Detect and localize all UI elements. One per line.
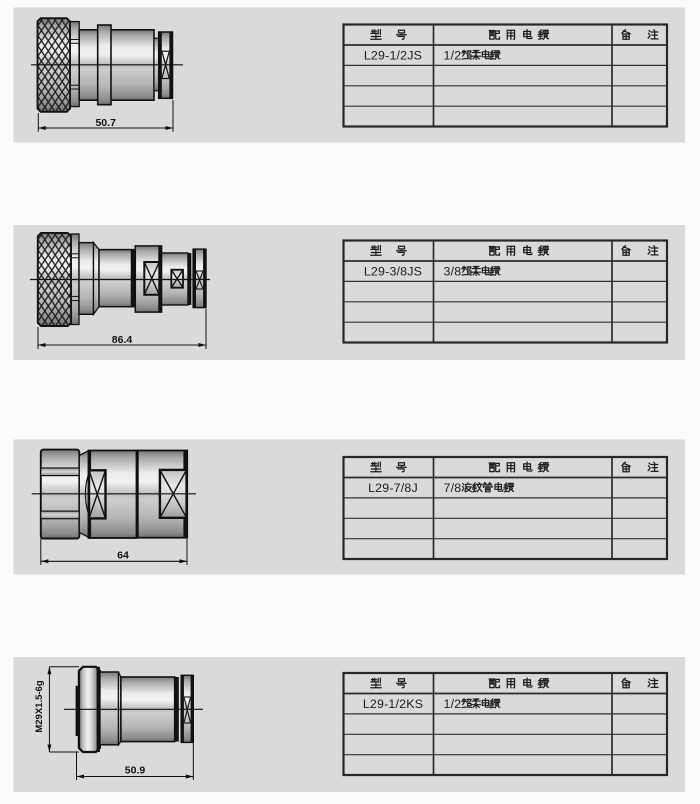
- svg-text:L29-7/8J: L29-7/8J: [368, 481, 418, 495]
- svg-text:50.9: 50.9: [125, 765, 146, 777]
- svg-text:L29-1/2KS: L29-1/2KS: [363, 697, 423, 711]
- svg-text:86.4: 86.4: [112, 334, 133, 346]
- svg-text:64: 64: [117, 549, 129, 561]
- svg-text:L29-3/8JS: L29-3/8JS: [364, 265, 422, 279]
- svg-text:L29-1/2JS: L29-1/2JS: [364, 49, 422, 63]
- svg-text:3/8: 3/8: [444, 265, 462, 279]
- svg-text:50.7: 50.7: [95, 117, 116, 129]
- svg-text:1/2: 1/2: [444, 697, 462, 711]
- svg-text:1/2: 1/2: [444, 49, 462, 63]
- svg-text:7/8: 7/8: [444, 481, 462, 495]
- svg-text:M29X1.5-6g: M29X1.5-6g: [34, 680, 45, 732]
